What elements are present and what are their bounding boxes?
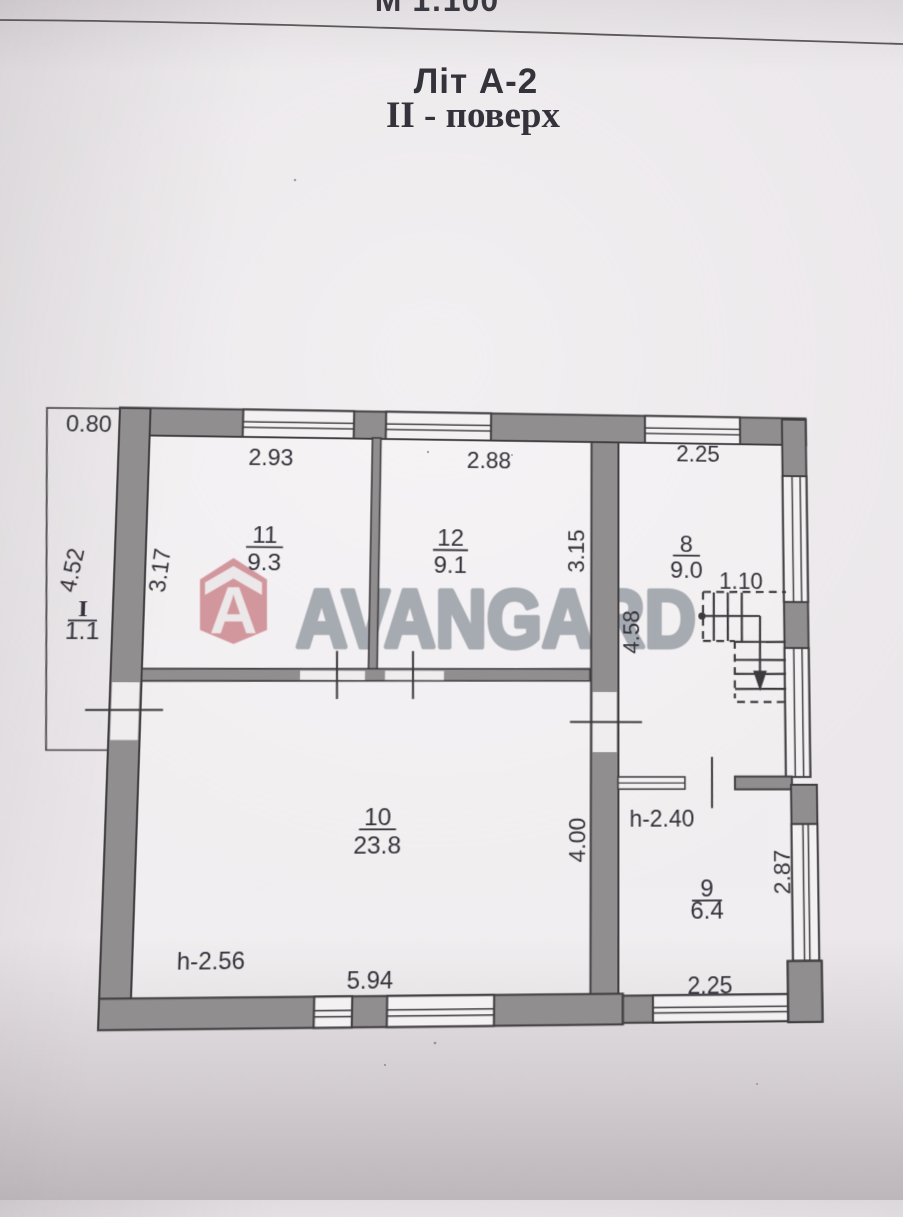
svg-text:М 1:100: М 1:100 (375, 0, 499, 18)
svg-text:9.0: 9.0 (670, 557, 703, 583)
svg-text:10: 10 (364, 803, 392, 830)
svg-text:4.52: 4.52 (54, 546, 90, 594)
svg-text:4.00: 4.00 (564, 818, 590, 863)
svg-text:9.3: 9.3 (247, 549, 282, 576)
svg-text:1.1: 1.1 (64, 618, 100, 645)
svg-text:5.94: 5.94 (347, 967, 394, 994)
svg-text:11: 11 (252, 522, 278, 549)
svg-text:8: 8 (680, 531, 693, 557)
svg-text:h-2.56: h-2.56 (176, 947, 245, 975)
svg-text:2.25: 2.25 (687, 972, 732, 999)
svg-text:23.8: 23.8 (353, 832, 401, 860)
svg-text:9.1: 9.1 (433, 552, 467, 579)
svg-text:h-2.40: h-2.40 (629, 806, 694, 832)
svg-text:12: 12 (437, 525, 464, 551)
svg-text:1.10: 1.10 (719, 569, 763, 594)
svg-text:4.58: 4.58 (618, 610, 644, 654)
svg-text:3.15: 3.15 (563, 529, 589, 572)
svg-text:3.17: 3.17 (143, 547, 176, 594)
svg-text:2.93: 2.93 (248, 445, 294, 471)
svg-text:2.25: 2.25 (676, 442, 720, 467)
svg-text:0.80: 0.80 (66, 411, 113, 437)
svg-text:2.87: 2.87 (769, 850, 795, 895)
svg-text:2.88: 2.88 (467, 448, 512, 473)
